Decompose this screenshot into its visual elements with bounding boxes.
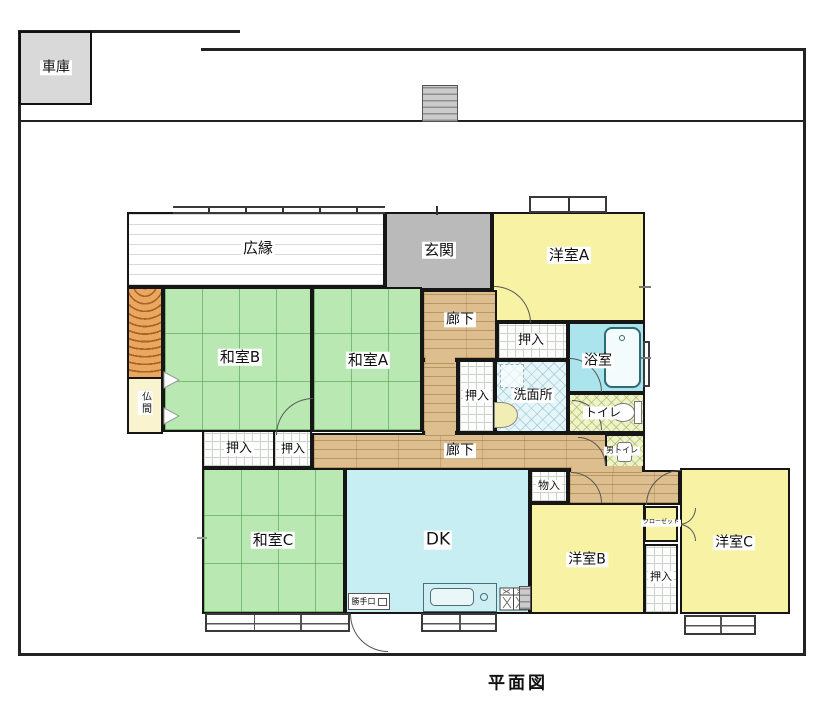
kitchen-faucet <box>480 593 488 601</box>
wall-tick-3 <box>197 537 207 539</box>
katteguchi-label: 勝手口 <box>352 596 376 607</box>
room-label-oshiire-4: 押入 <box>279 442 307 455</box>
room-label-genkan: 玄関 <box>422 242 456 259</box>
entry-steps <box>422 85 458 122</box>
room-label-corridor-upper: 廊下 <box>444 312 476 327</box>
fusuma-triangle-icon <box>163 407 180 425</box>
room-label-closet: クローゼット <box>641 520 681 527</box>
property-line-left <box>18 30 21 656</box>
window-dk-bottom <box>421 613 497 632</box>
room-label-yoshitsu-b: 洋室B <box>566 552 608 567</box>
room-label-toilet: トイレ <box>583 406 623 419</box>
window-mullion <box>459 615 461 630</box>
katteguchi-box: 勝手口 <box>348 593 390 610</box>
tokonoma-alcove <box>127 287 163 379</box>
corridor-seam-2 <box>425 430 455 436</box>
room-label-washitsu-c: 和室C <box>251 532 295 549</box>
room-label-corridor-lower: 廊下 <box>444 443 476 458</box>
room-label-butsuma: 仏間 <box>138 391 153 415</box>
laundry-pan <box>500 364 524 388</box>
room-label-hiroen: 広縁 <box>241 240 275 257</box>
room-label-oshiire-5: 押入 <box>648 571 674 583</box>
property-line-right <box>803 48 806 656</box>
bathtub-drain <box>619 335 625 341</box>
window-washitsu-c-bottom <box>205 613 350 632</box>
room-label-washitsu-a: 和室A <box>346 352 390 369</box>
room-label-washitsu-b: 和室B <box>218 349 262 366</box>
window-genkan-tick <box>436 206 438 215</box>
wall-tick-1 <box>639 286 651 288</box>
room-label-dk: DK <box>424 531 452 550</box>
kitchen-sink <box>423 583 497 612</box>
toilet-tank <box>634 401 642 424</box>
corridor-seam-3 <box>571 466 642 473</box>
window-mullion <box>720 617 722 633</box>
fusuma-triangle-icon <box>163 371 180 389</box>
room-label-yokushitsu: 浴室 <box>582 353 614 368</box>
room-label-mens-toilet: 男トイレ <box>604 447 640 456</box>
door-arc-katteguchi <box>350 614 388 652</box>
garage-label: 車庫 <box>40 60 72 75</box>
plan-title: 平面図 <box>486 675 550 694</box>
floor-plan-canvas: 車庫 <box>0 0 823 713</box>
room-label-senmenjo: 洗面所 <box>511 389 554 403</box>
corridor-upper-leg <box>422 360 458 433</box>
window-hiroen-top <box>173 206 385 214</box>
katteguchi-door-icon <box>378 598 387 606</box>
room-label-oshiire-1: 押入 <box>516 334 546 348</box>
window-mullion <box>254 615 256 630</box>
room-label-oshiire-3: 押入 <box>224 442 254 456</box>
property-line-top-right <box>201 48 806 51</box>
window-mullion <box>300 615 302 630</box>
room-label-yoshitsu-c: 洋室C <box>713 535 755 550</box>
property-line-bottom <box>18 653 806 656</box>
room-label-oshiire-2: 押入 <box>463 389 491 402</box>
kitchen-sink-basin <box>430 588 474 606</box>
window-yoshitsu-a-top <box>529 196 607 213</box>
kitchen-step-box <box>519 586 531 610</box>
window-bath-right <box>643 341 650 387</box>
corridor-seam <box>425 356 455 364</box>
room-label-yoshitsu-a: 洋室A <box>547 247 591 264</box>
window-yoshitsu-c-bottom <box>684 615 756 635</box>
property-line-middle <box>18 120 806 122</box>
room-label-monoire: 物入 <box>536 480 562 492</box>
window-mullion <box>568 198 570 211</box>
